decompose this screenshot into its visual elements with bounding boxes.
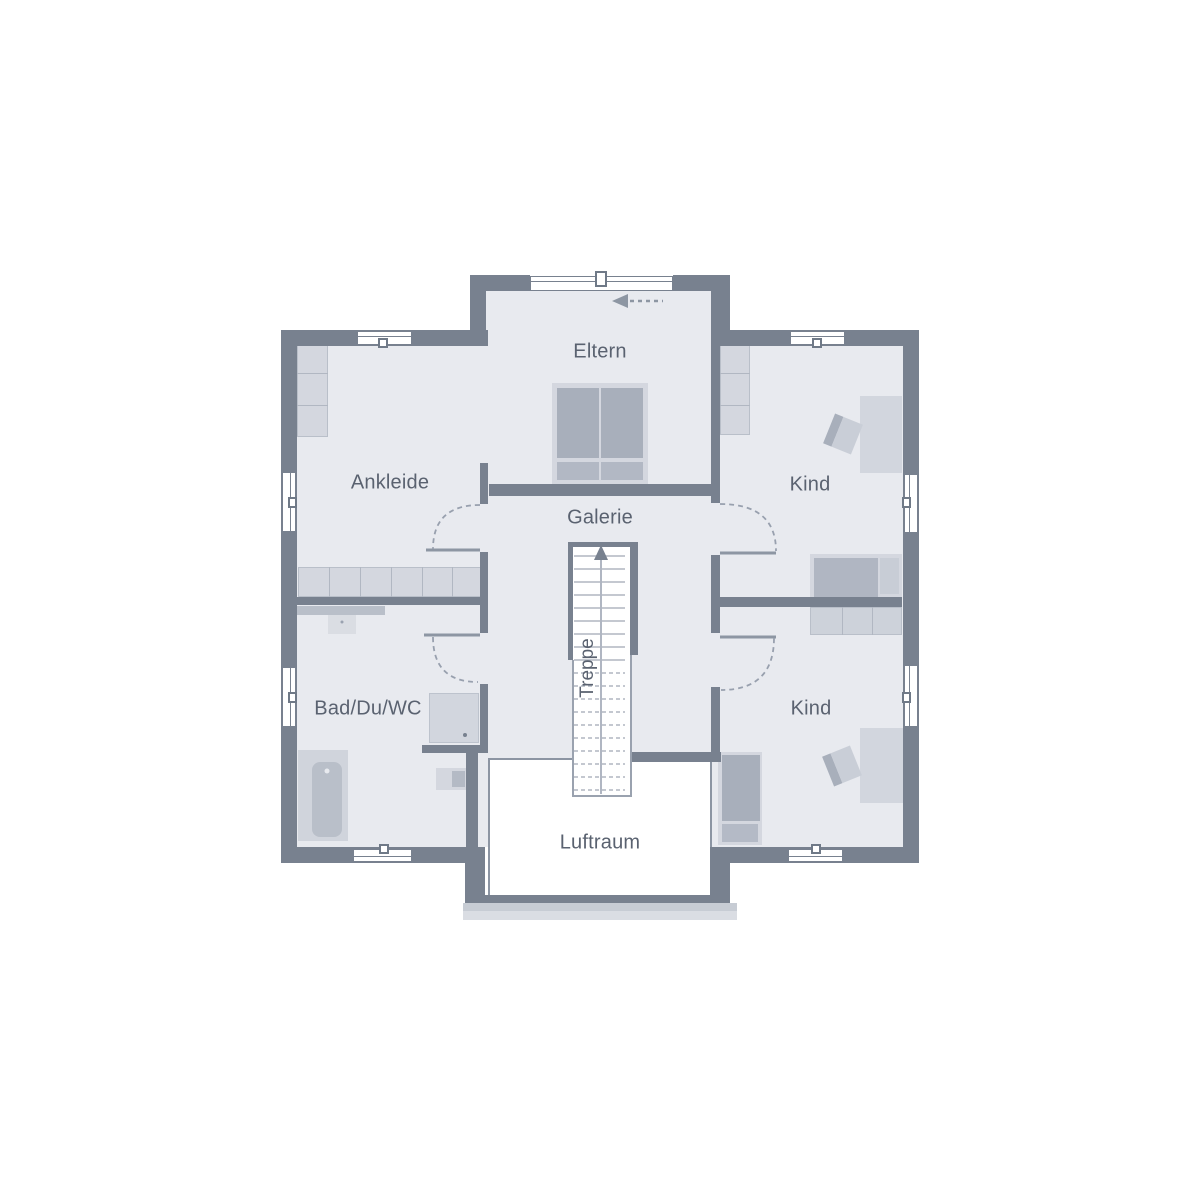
appliance-dot (341, 621, 344, 624)
window-handle (902, 497, 911, 508)
bathtub-faucet-dot (325, 769, 330, 774)
room-label-eltern: Eltern (573, 341, 626, 364)
shower-drain-dot (463, 733, 467, 737)
door-arc-kind-bottom (721, 638, 774, 690)
window-handle (288, 497, 297, 508)
room-label-kind-bottom: Kind (791, 698, 832, 721)
room-label-bad: Bad/Du/WC (314, 698, 421, 721)
door-swing-arcs (433, 504, 776, 690)
room-label-kind-top: Kind (790, 474, 831, 497)
window-handle (812, 338, 822, 348)
door-arc-bad (433, 637, 478, 682)
door-arc-ankleide (433, 505, 480, 549)
room-label-treppe: Treppe (577, 638, 599, 698)
window-handle (811, 844, 821, 854)
room-label-luftraum: Luftraum (560, 832, 641, 855)
room-label-ankleide: Ankleide (351, 472, 429, 495)
stair-up-arrow (594, 545, 608, 560)
plan-linework (0, 0, 1200, 1200)
window-handle (379, 844, 389, 854)
window-handle (595, 271, 607, 287)
door-arc-kind-top (720, 504, 776, 551)
window-handle (902, 692, 911, 703)
floor-plan-canvas: Eltern Ankleide Kind Galerie Bad/Du/WC K… (0, 0, 1200, 1200)
window-handle (378, 338, 388, 348)
window-handle (288, 692, 297, 703)
room-label-galerie: Galerie (567, 507, 633, 530)
entry-arrow (612, 294, 663, 308)
